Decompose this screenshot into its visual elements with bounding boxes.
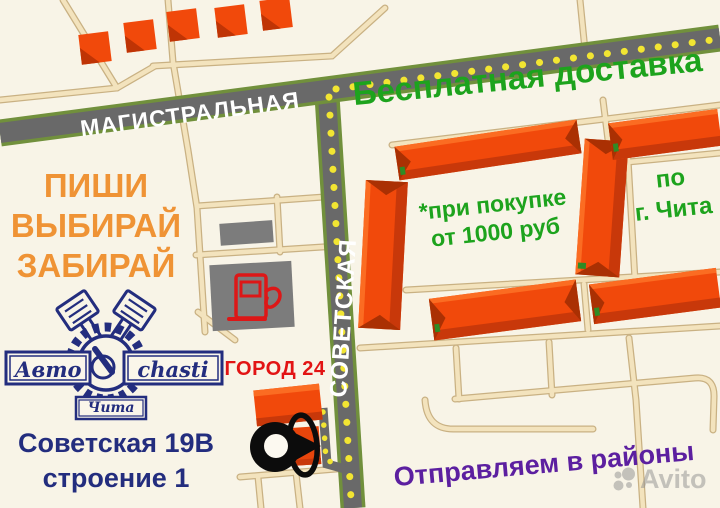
slogan-text: ПИШИ ВЫБИРАЙ ЗАБИРАЙ (2, 166, 190, 286)
slogan-line-3: ЗАБИРАЙ (2, 246, 190, 286)
logo-text-city: Чита (88, 400, 135, 416)
avito-logo-icon (611, 467, 637, 493)
watermark: Avito (611, 466, 707, 493)
house (166, 8, 199, 41)
house (214, 4, 247, 37)
landmark-label: ГОРОД 24 (218, 357, 332, 381)
coverage-area-text: по г. Чита (617, 158, 720, 231)
address-line-2: строение 1 (0, 461, 232, 496)
house (123, 19, 156, 52)
logo-text-left: Авто (12, 357, 81, 382)
address-line-1: Советская 19В (0, 426, 232, 461)
house (78, 31, 111, 64)
houses-row (78, 0, 293, 65)
watermark-label: Avito (640, 466, 707, 493)
slogan-line-2: ВЫБИРАЙ (2, 206, 190, 246)
map-canvas: МАГИСТРАЛЬНАЯ СОВЕТСКАЯ Авто c (0, 0, 720, 508)
gray-building (219, 220, 273, 246)
logo-text-right: chasti (137, 357, 208, 382)
logo-banner-left: Авто (6, 352, 90, 384)
slogan-line-1: ПИШИ (2, 166, 190, 206)
building (394, 120, 581, 181)
address-text: Советская 19В строение 1 (0, 426, 232, 496)
logo-banner-city: Чита (76, 397, 146, 419)
logo-banner-right: chasti (124, 352, 222, 384)
house (259, 0, 292, 31)
gas-station (209, 261, 294, 331)
shop-logo: Авто chasti Чита (6, 290, 222, 419)
